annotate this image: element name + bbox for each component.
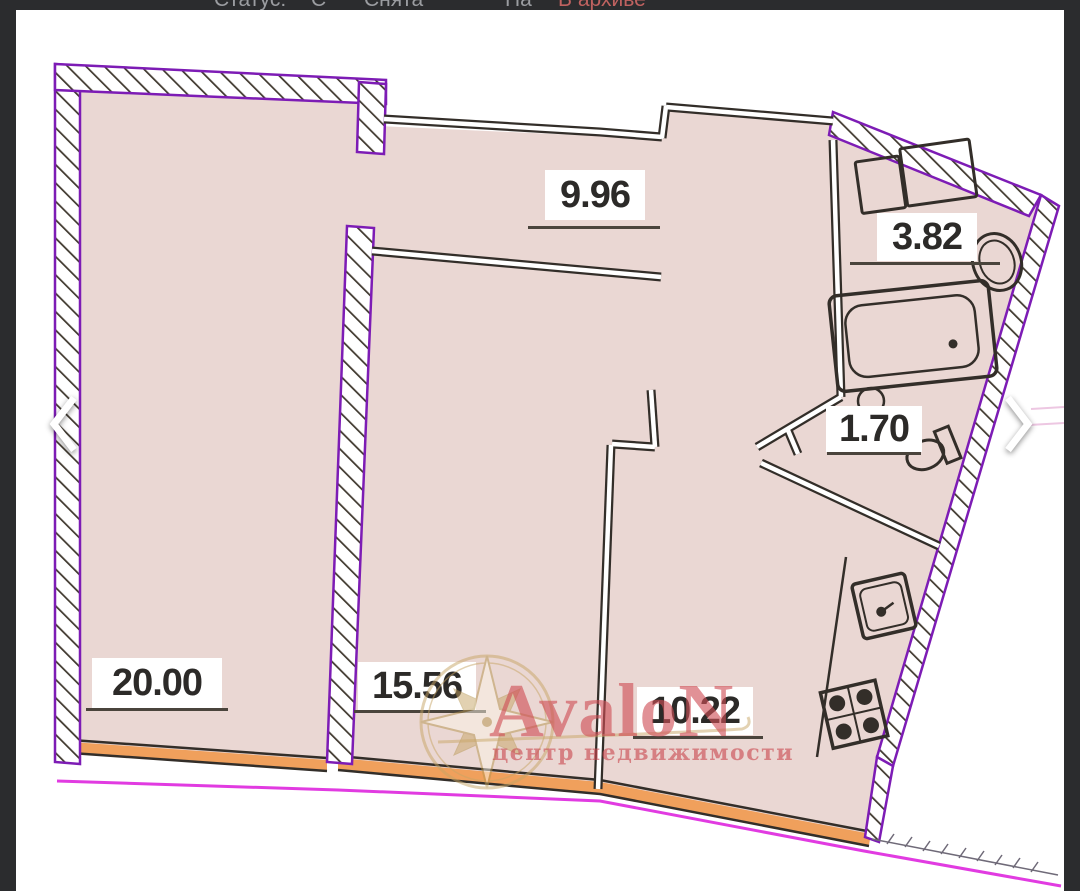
boundary-line bbox=[57, 781, 1061, 886]
area-underline bbox=[850, 262, 1000, 265]
room-area-label-living: 20.00 bbox=[92, 658, 222, 708]
area-underline bbox=[86, 708, 228, 711]
room-area-label-wc: 1.70 bbox=[826, 406, 922, 452]
status-text-3: На bbox=[505, 0, 532, 10]
floorplan-image[interactable]: 20.00 15.56 9.96 10.22 3.82 1.70 AvaloN … bbox=[16, 10, 1064, 891]
status-text-0: Статус: bbox=[214, 0, 286, 10]
prev-button[interactable] bbox=[44, 388, 88, 460]
room-area-label-bathroom: 3.82 bbox=[877, 213, 977, 261]
status-text-archive: В архиве bbox=[558, 0, 646, 10]
status-text-2: Снята bbox=[364, 0, 423, 10]
chevron-right-icon bbox=[994, 388, 1038, 460]
area-underline bbox=[528, 226, 660, 229]
room-area-label-bedroom: 15.56 bbox=[358, 662, 476, 710]
status-bar: Статус: С Снята На В архиве bbox=[0, 0, 1080, 10]
room-area-label-hall: 9.96 bbox=[545, 170, 645, 220]
status-text-1: С bbox=[311, 0, 326, 10]
area-underline bbox=[827, 452, 921, 455]
area-underline bbox=[354, 710, 486, 713]
area-underline bbox=[633, 736, 763, 739]
chevron-left-icon bbox=[44, 388, 88, 460]
room-area-label-kitchen: 10.22 bbox=[637, 687, 753, 735]
next-button[interactable] bbox=[994, 388, 1038, 460]
